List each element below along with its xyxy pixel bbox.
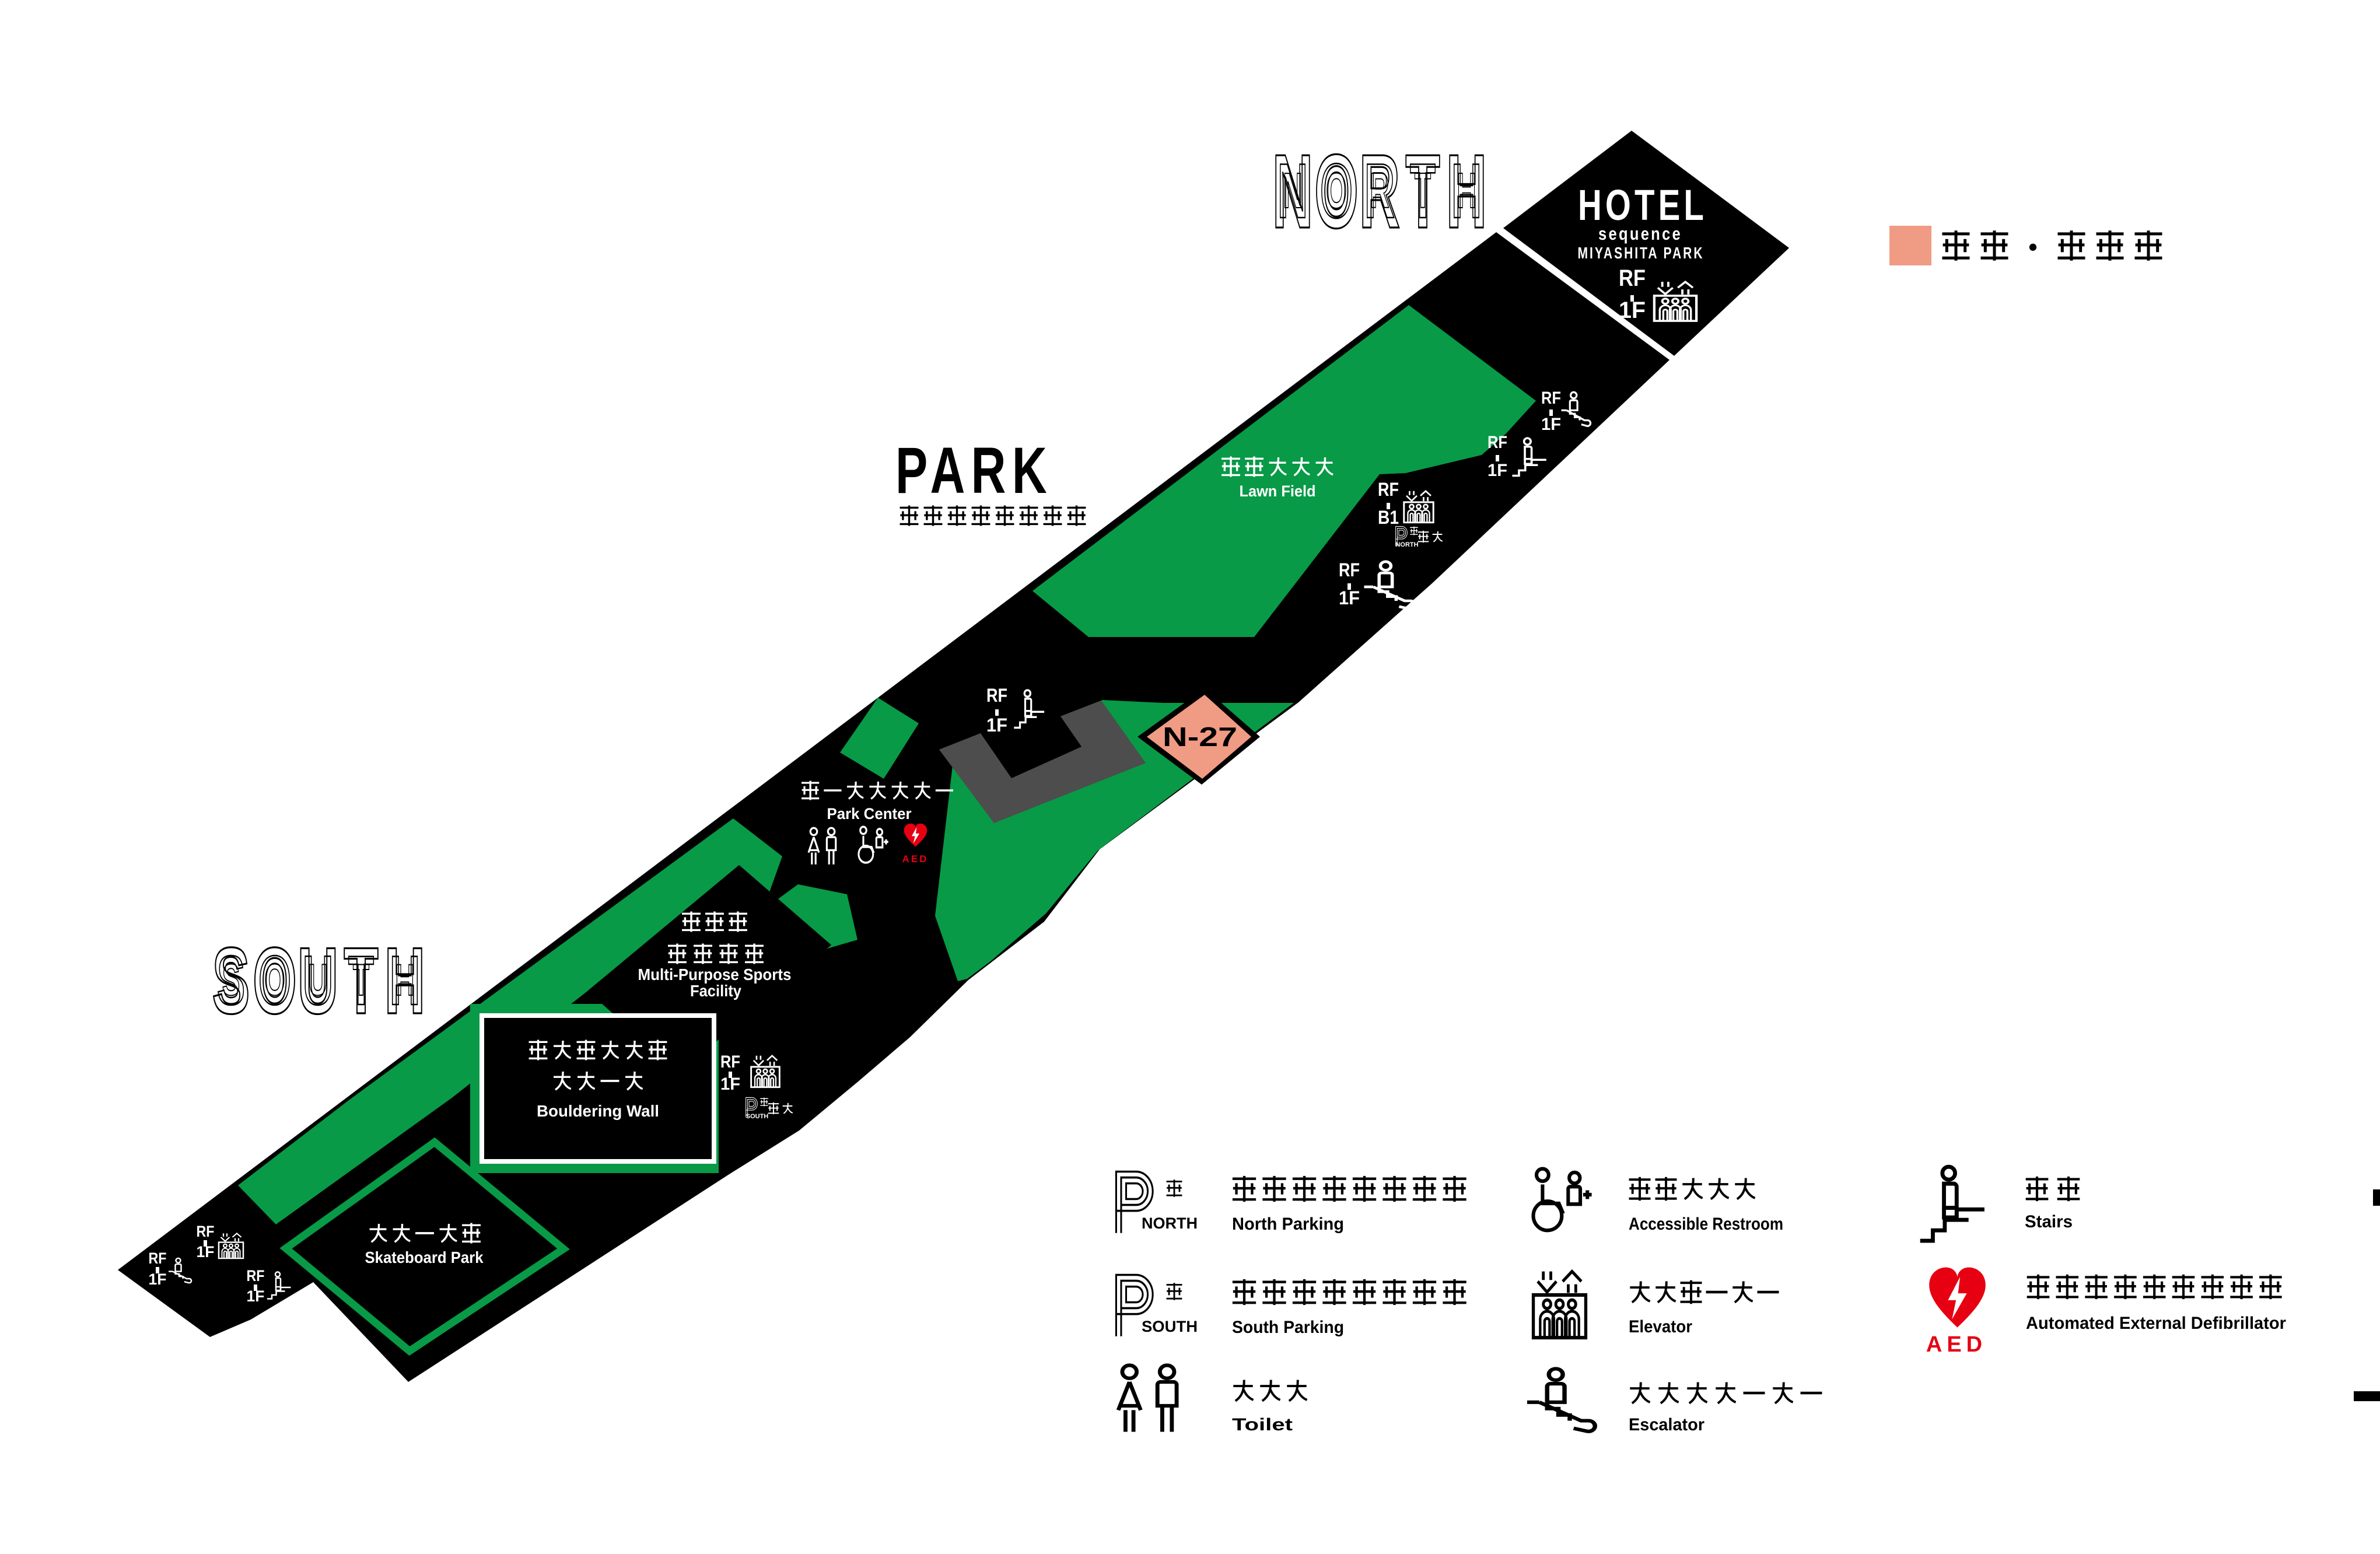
svg-text:Elevator: Elevator — [1629, 1317, 1692, 1336]
svg-text:1F: 1F — [1619, 297, 1646, 323]
svg-text:RF: RF — [247, 1267, 265, 1284]
svg-text:N-27: N-27 — [1163, 722, 1237, 752]
svg-text:AED: AED — [902, 853, 929, 864]
svg-text:Bouldering Wall: Bouldering Wall — [537, 1102, 659, 1120]
svg-text:NORTH: NORTH — [1395, 541, 1418, 548]
svg-text:RF: RF — [986, 685, 1007, 706]
svg-text:T: T — [353, 956, 369, 1005]
svg-text:MIYASHITA PARK: MIYASHITA PARK — [1578, 244, 1704, 262]
svg-text:RF: RF — [1541, 388, 1561, 408]
svg-text:SOUTH: SOUTH — [746, 1113, 769, 1120]
svg-text:1F: 1F — [197, 1243, 215, 1261]
svg-text:1F: 1F — [247, 1287, 265, 1305]
svg-text:O: O — [264, 956, 285, 1005]
svg-text:N: N — [1283, 163, 1302, 218]
svg-text:NORTH: NORTH — [1142, 1214, 1198, 1232]
svg-text:RF: RF — [1619, 265, 1646, 291]
svg-text:sequence: sequence — [1598, 223, 1682, 244]
svg-text:RF: RF — [149, 1249, 167, 1267]
svg-text:1F: 1F — [149, 1270, 167, 1288]
svg-text:RF: RF — [720, 1052, 740, 1072]
svg-text:Escalator: Escalator — [1629, 1415, 1704, 1434]
svg-text:AED: AED — [1926, 1332, 1987, 1357]
svg-text:H: H — [395, 956, 414, 1005]
svg-text:Stairs: Stairs — [2025, 1212, 2073, 1231]
svg-text:RF: RF — [1378, 479, 1399, 500]
svg-text:RF: RF — [197, 1223, 215, 1240]
svg-text:RF: RF — [1487, 433, 1507, 452]
svg-text:PARK: PARK — [895, 434, 1053, 507]
svg-text:1F: 1F — [720, 1074, 740, 1094]
svg-text:B1: B1 — [1378, 507, 1399, 528]
svg-text:South Parking: South Parking — [1232, 1318, 1344, 1337]
svg-text:HOTEL: HOTEL — [1578, 181, 1707, 229]
svg-text:U: U — [308, 956, 327, 1005]
svg-text:Facility: Facility — [690, 982, 741, 1000]
svg-text:Toilet: Toilet — [1232, 1415, 1293, 1434]
svg-text:Park Center: Park Center — [827, 805, 912, 822]
svg-text:1F: 1F — [1487, 461, 1507, 480]
svg-text:H: H — [1457, 163, 1476, 218]
svg-text:O: O — [1326, 163, 1347, 218]
svg-text:T: T — [1415, 163, 1431, 218]
svg-text:1F: 1F — [1339, 587, 1360, 608]
svg-text:1F: 1F — [1541, 415, 1561, 434]
svg-text:Multi-Purpose Sports: Multi-Purpose Sports — [638, 965, 792, 984]
svg-text:S: S — [222, 956, 240, 1005]
svg-text:SOUTH: SOUTH — [1142, 1318, 1198, 1335]
svg-text:R: R — [1370, 163, 1389, 218]
svg-text:North Parking: North Parking — [1232, 1214, 1344, 1234]
svg-text:RF: RF — [1339, 559, 1360, 580]
svg-text:Skateboard Park: Skateboard Park — [365, 1248, 484, 1266]
svg-text:1F: 1F — [986, 715, 1007, 736]
svg-text:Accessible Restroom: Accessible Restroom — [1629, 1214, 1783, 1234]
svg-text:Automated External Defibrillat: Automated External Defibrillator — [2026, 1314, 2286, 1333]
svg-text:Lawn Field: Lawn Field — [1240, 482, 1316, 500]
